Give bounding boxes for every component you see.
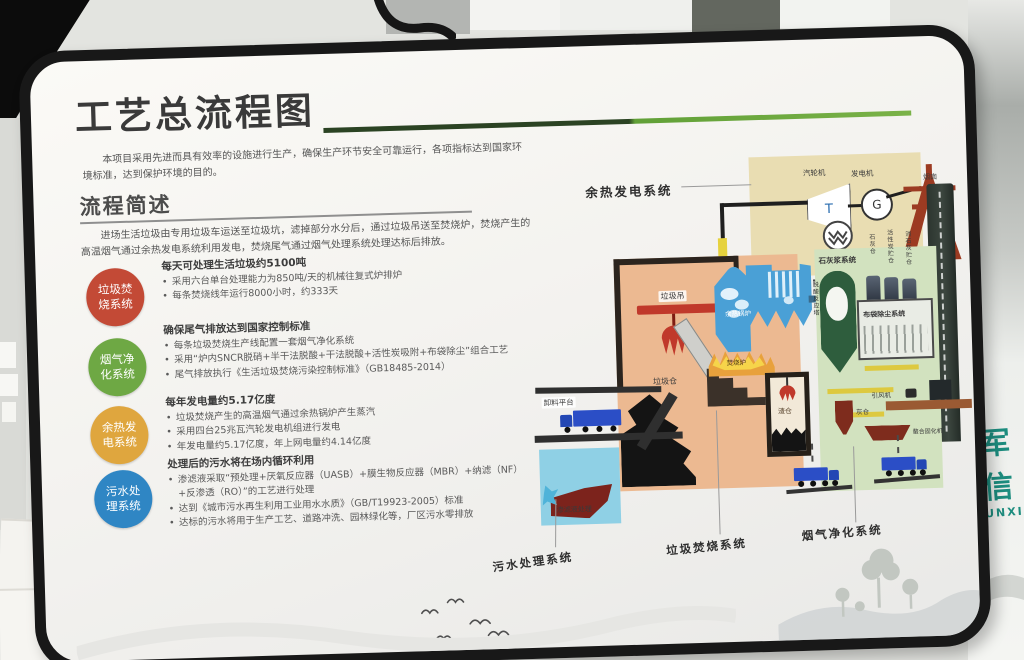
power-leader-line <box>681 184 751 187</box>
generator-symbol: G <box>872 197 882 211</box>
silo2-label: 活性炭贮仓 <box>885 229 895 271</box>
wall-panel-white3 <box>780 0 890 28</box>
silo3-label: 消石灰贮仓 <box>903 231 913 273</box>
boiler-label: 余热锅炉 <box>725 307 751 318</box>
turbine-symbol: T <box>825 201 833 216</box>
id-fan-icon <box>905 388 916 397</box>
leachate-box: 渗滤液处理 <box>539 447 621 525</box>
page-title: 工艺总流程图 <box>74 80 315 141</box>
waste-pile <box>619 393 696 487</box>
turbine-label: 汽轮机 <box>803 167 826 179</box>
generator-label: 发电机 <box>851 168 874 180</box>
system-block-fluegas: 确保尾气排放达到国家控制标准 每条垃圾焚烧生产线配置一套烟气净化系统 采用“炉内… <box>163 311 547 382</box>
id-fan-label: 引风机 <box>871 389 891 400</box>
photo-scene: 军信 UNXI 工艺总流程图 本项目采用先进而具有效率的设施进行生产，确保生产环… <box>0 0 1024 660</box>
silo1-label: 石灰仓 <box>867 234 877 272</box>
filter-bags <box>864 324 929 354</box>
garbage-truck <box>560 405 627 435</box>
bag-filter-label: 布袋除尘系统 <box>863 309 905 320</box>
badge-power: 余热发 电系统 <box>90 405 150 465</box>
tower-cloud <box>825 287 848 322</box>
junxin-sign-en: UNXI <box>985 504 1024 520</box>
chimney-label: 烟囱 <box>923 172 937 182</box>
ash-truck-arrow <box>811 444 814 462</box>
bag-filter-box: 布袋除尘系统 <box>857 298 935 360</box>
title-underline <box>323 111 911 133</box>
slag-label: 渣仓 <box>778 406 792 416</box>
leachate-label: 渗滤液处理 <box>557 504 592 515</box>
slag-pile <box>771 425 806 452</box>
duct-box <box>929 379 952 400</box>
wall-panel-white2 <box>560 0 692 30</box>
system-block-sewage: 处理后的污水将在场内循环利用 渗滤液采取“预处理+厌氧反应器（UASB）+膜生物… <box>167 446 535 531</box>
trees-hill-decoration <box>776 535 989 651</box>
bottom-wave-decoration <box>76 590 738 660</box>
incineration-system-label: 垃圾焚烧系统 <box>665 535 747 559</box>
solidified-ash-truck <box>881 454 930 477</box>
sewage-leader <box>555 499 556 547</box>
badge-incineration: 垃圾焚 烧系统 <box>85 267 145 327</box>
ash-truck <box>794 465 843 488</box>
wall-tag1 <box>0 342 16 368</box>
section-heading: 流程简述 <box>79 189 172 222</box>
wall-panel-dark <box>692 0 780 32</box>
wall-tag2 <box>0 374 18 396</box>
badge-sewage: 污水处 理系统 <box>93 469 153 529</box>
lime-slurry-label: 石灰浆系统 <box>818 254 856 266</box>
condenser-icon <box>822 220 853 251</box>
wall-panel-white1 <box>470 0 560 30</box>
badge-fluegas: 烟气净 化系统 <box>88 337 148 397</box>
turbine-shaft <box>848 204 862 207</box>
intro-paragraph: 本项目采用先进而具有效率的设施进行生产，确保生产环节安全可靠运行，各项指标达到国… <box>82 140 531 185</box>
sewage-system-label: 污水处理系统 <box>492 549 574 576</box>
incinerator-label: 焚烧炉 <box>726 357 746 368</box>
ash-silo-label: 灰仓 <box>856 406 869 416</box>
cable-icon <box>372 0 456 44</box>
slag-claw-icon <box>777 385 797 402</box>
solidifier-label: 螯合固化机 <box>913 426 943 436</box>
power-system-label: 余热发电系统 <box>585 180 673 202</box>
waste-crane-label: 垃圾吊 <box>658 290 686 302</box>
system-block-power: 每年发电量约5.17亿度 垃圾焚烧产生的高温烟气通过余热锅炉产生蒸汽 采用四台2… <box>165 383 549 454</box>
display-board: 工艺总流程图 本项目采用先进而具有效率的设施进行生产，确保生产环节安全可靠运行，… <box>18 24 992 660</box>
wall-tag3 <box>2 402 16 422</box>
